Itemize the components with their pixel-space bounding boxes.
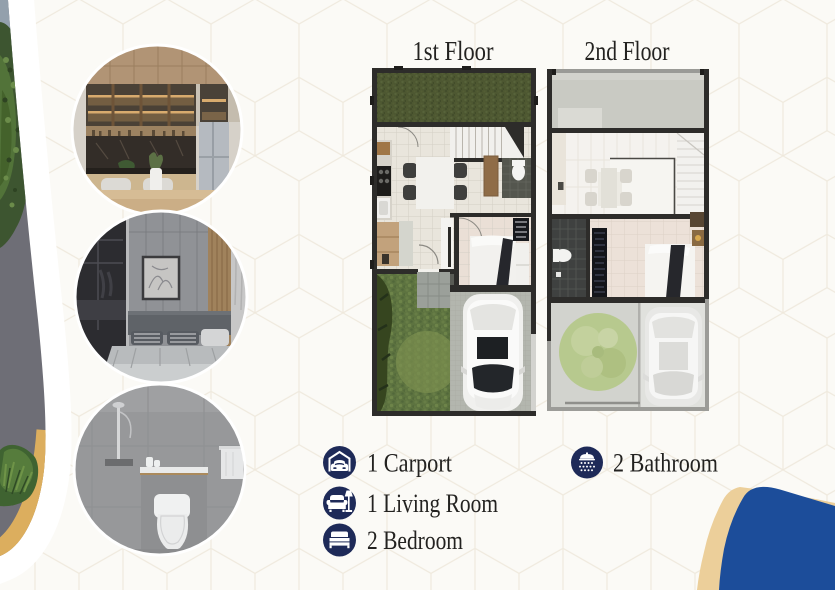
svg-text:2nd Floor: 2nd Floor bbox=[585, 36, 670, 66]
svg-text:1st Floor: 1st Floor bbox=[413, 36, 494, 66]
svg-text:1 Carport: 1 Carport bbox=[367, 448, 453, 478]
svg-text:2 Bathroom: 2 Bathroom bbox=[613, 448, 718, 478]
svg-text:1 Living Room: 1 Living Room bbox=[367, 488, 498, 518]
svg-text:2 Bedroom: 2 Bedroom bbox=[367, 525, 463, 555]
